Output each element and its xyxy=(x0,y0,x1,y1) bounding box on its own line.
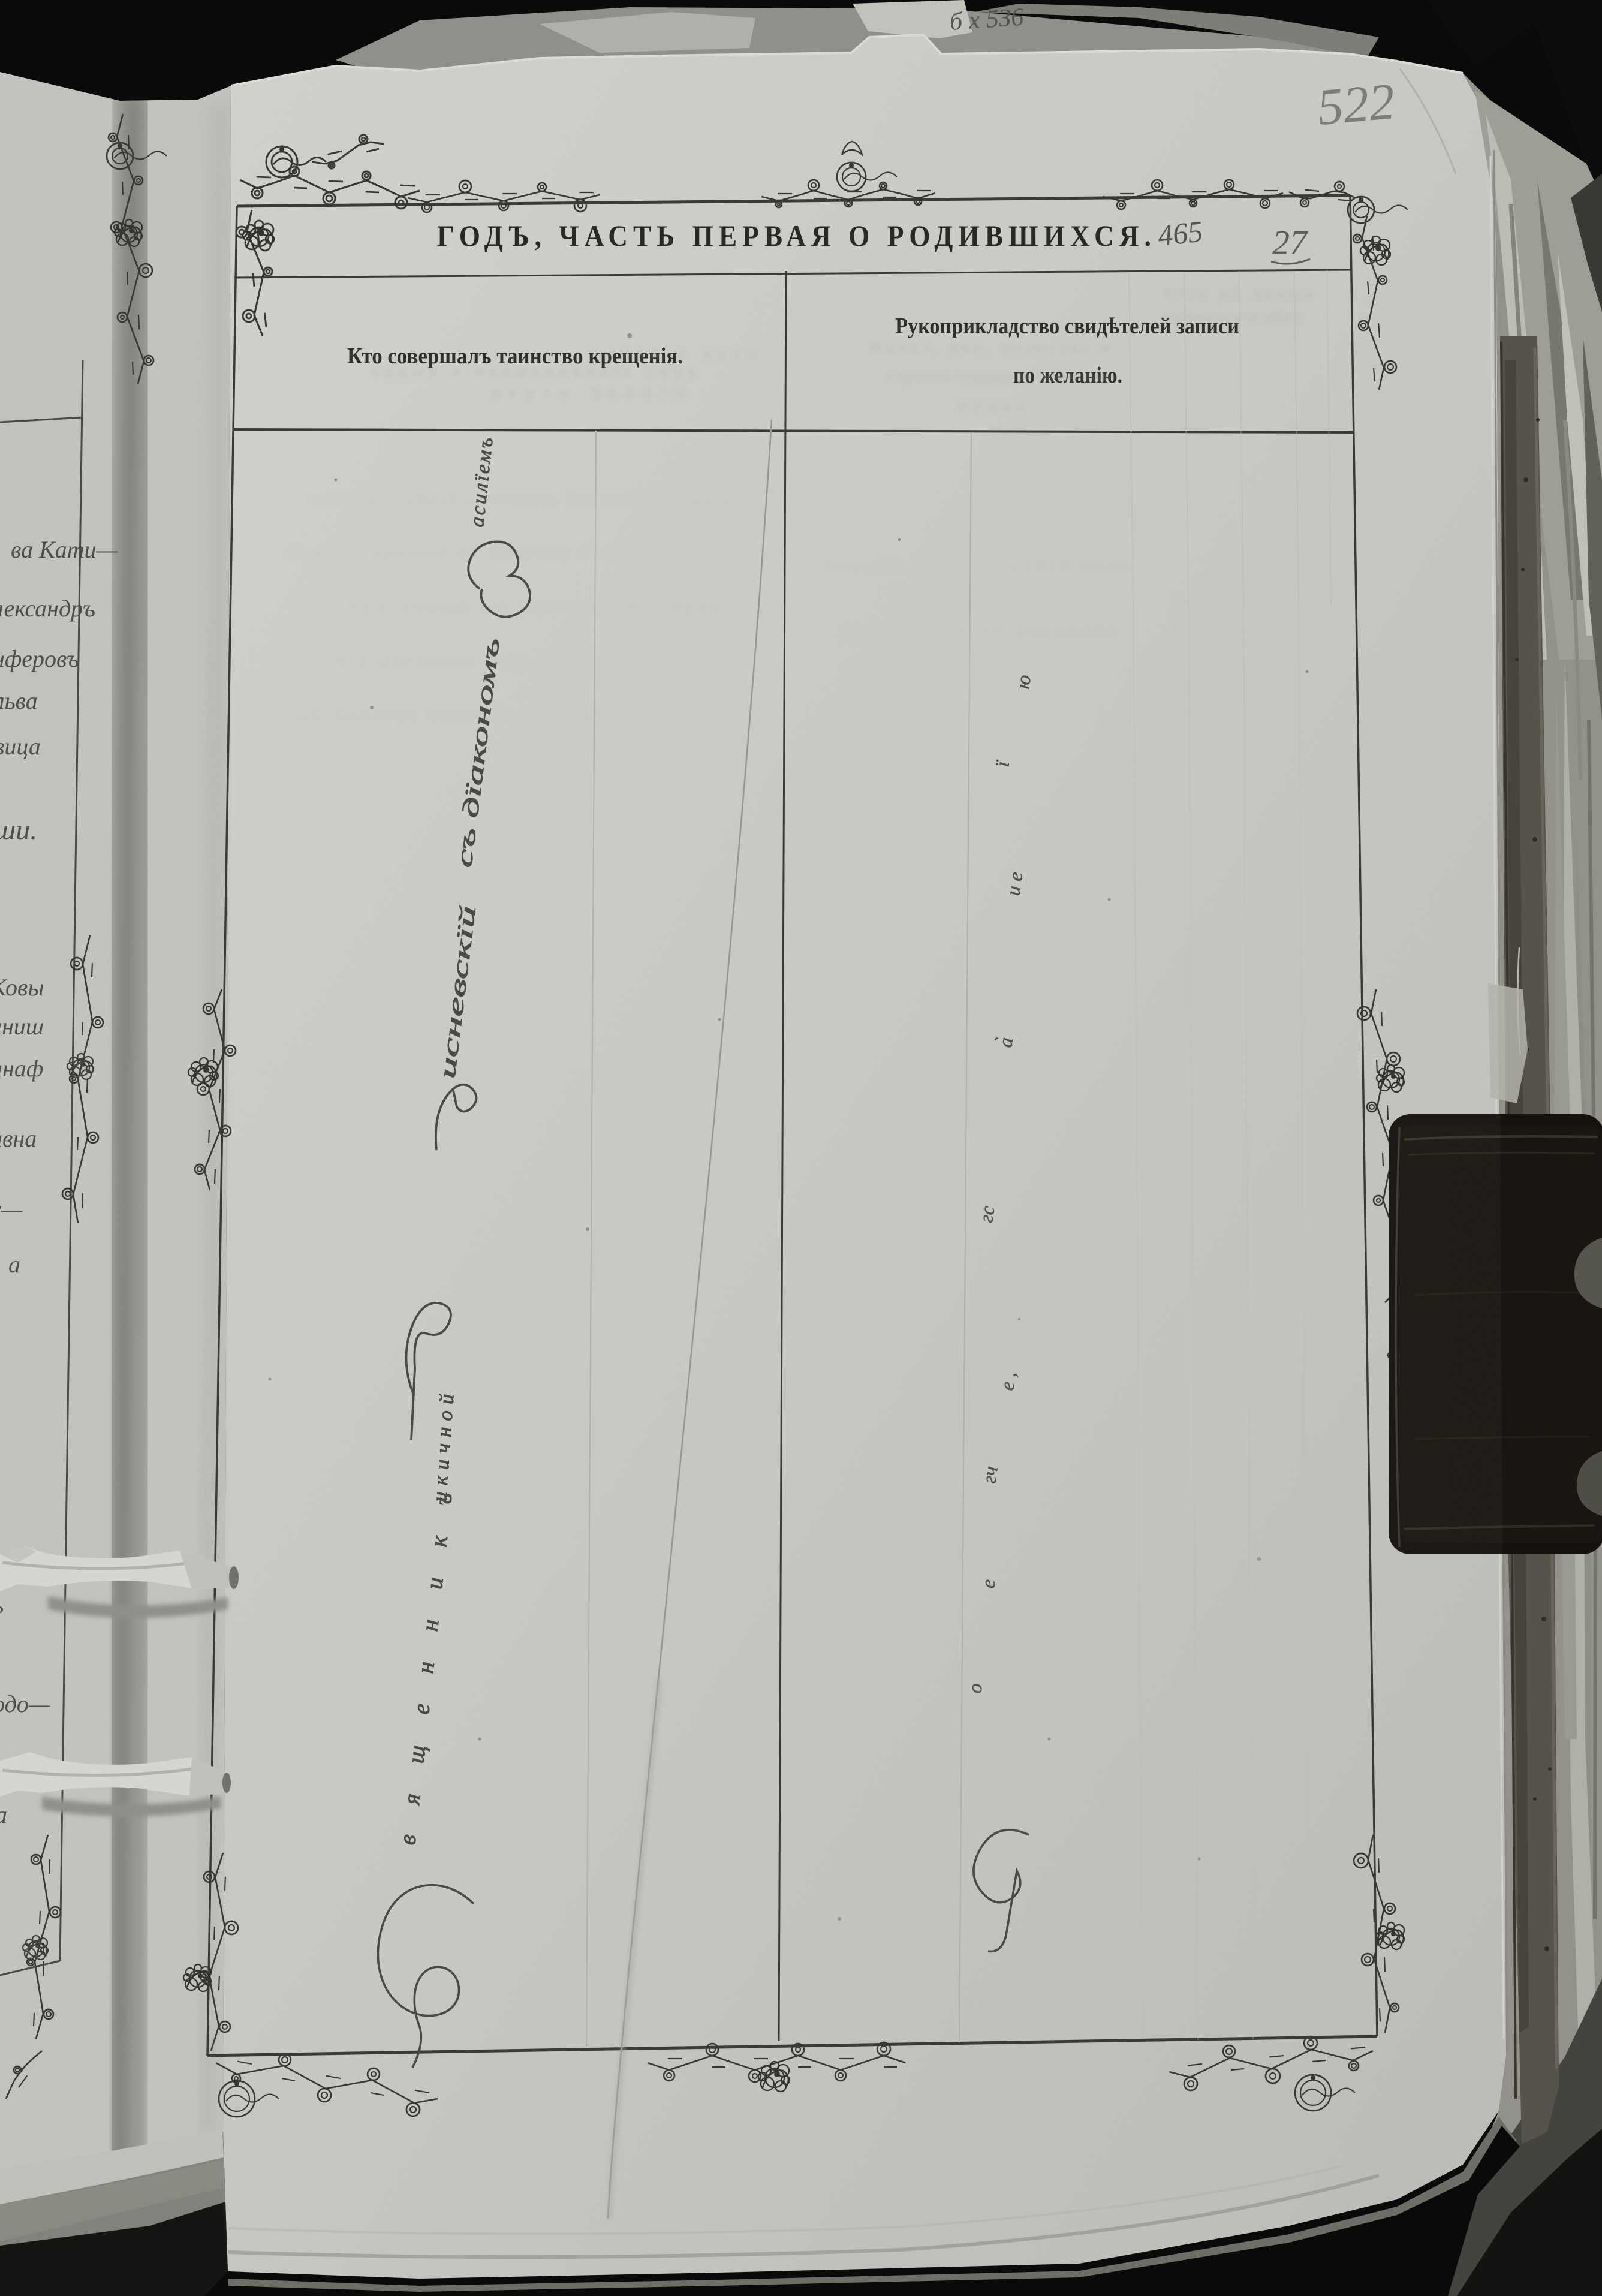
svg-text:б х 5З6: б х 5З6 xyxy=(948,3,1024,36)
